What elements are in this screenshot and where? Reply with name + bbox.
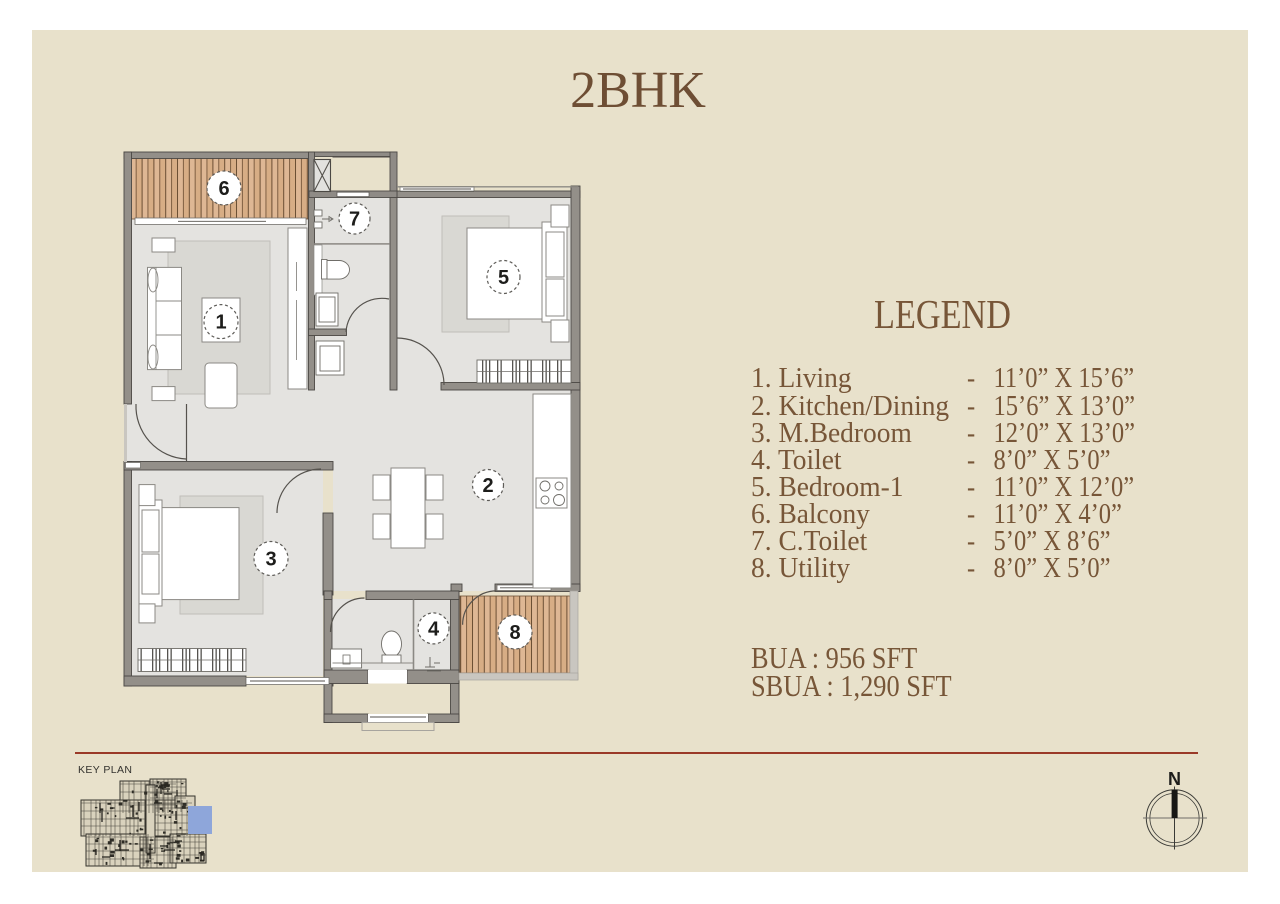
svg-text:N: N bbox=[1168, 769, 1181, 789]
svg-text:1: 1 bbox=[215, 312, 226, 334]
svg-text:7: 7 bbox=[349, 209, 360, 231]
svg-text:2: 2 bbox=[482, 475, 493, 497]
svg-text:3: 3 bbox=[265, 549, 276, 571]
svg-text:8: 8 bbox=[509, 622, 520, 644]
svg-text:5: 5 bbox=[498, 267, 509, 289]
svg-text:4: 4 bbox=[428, 618, 440, 640]
svg-text:6: 6 bbox=[218, 178, 229, 200]
